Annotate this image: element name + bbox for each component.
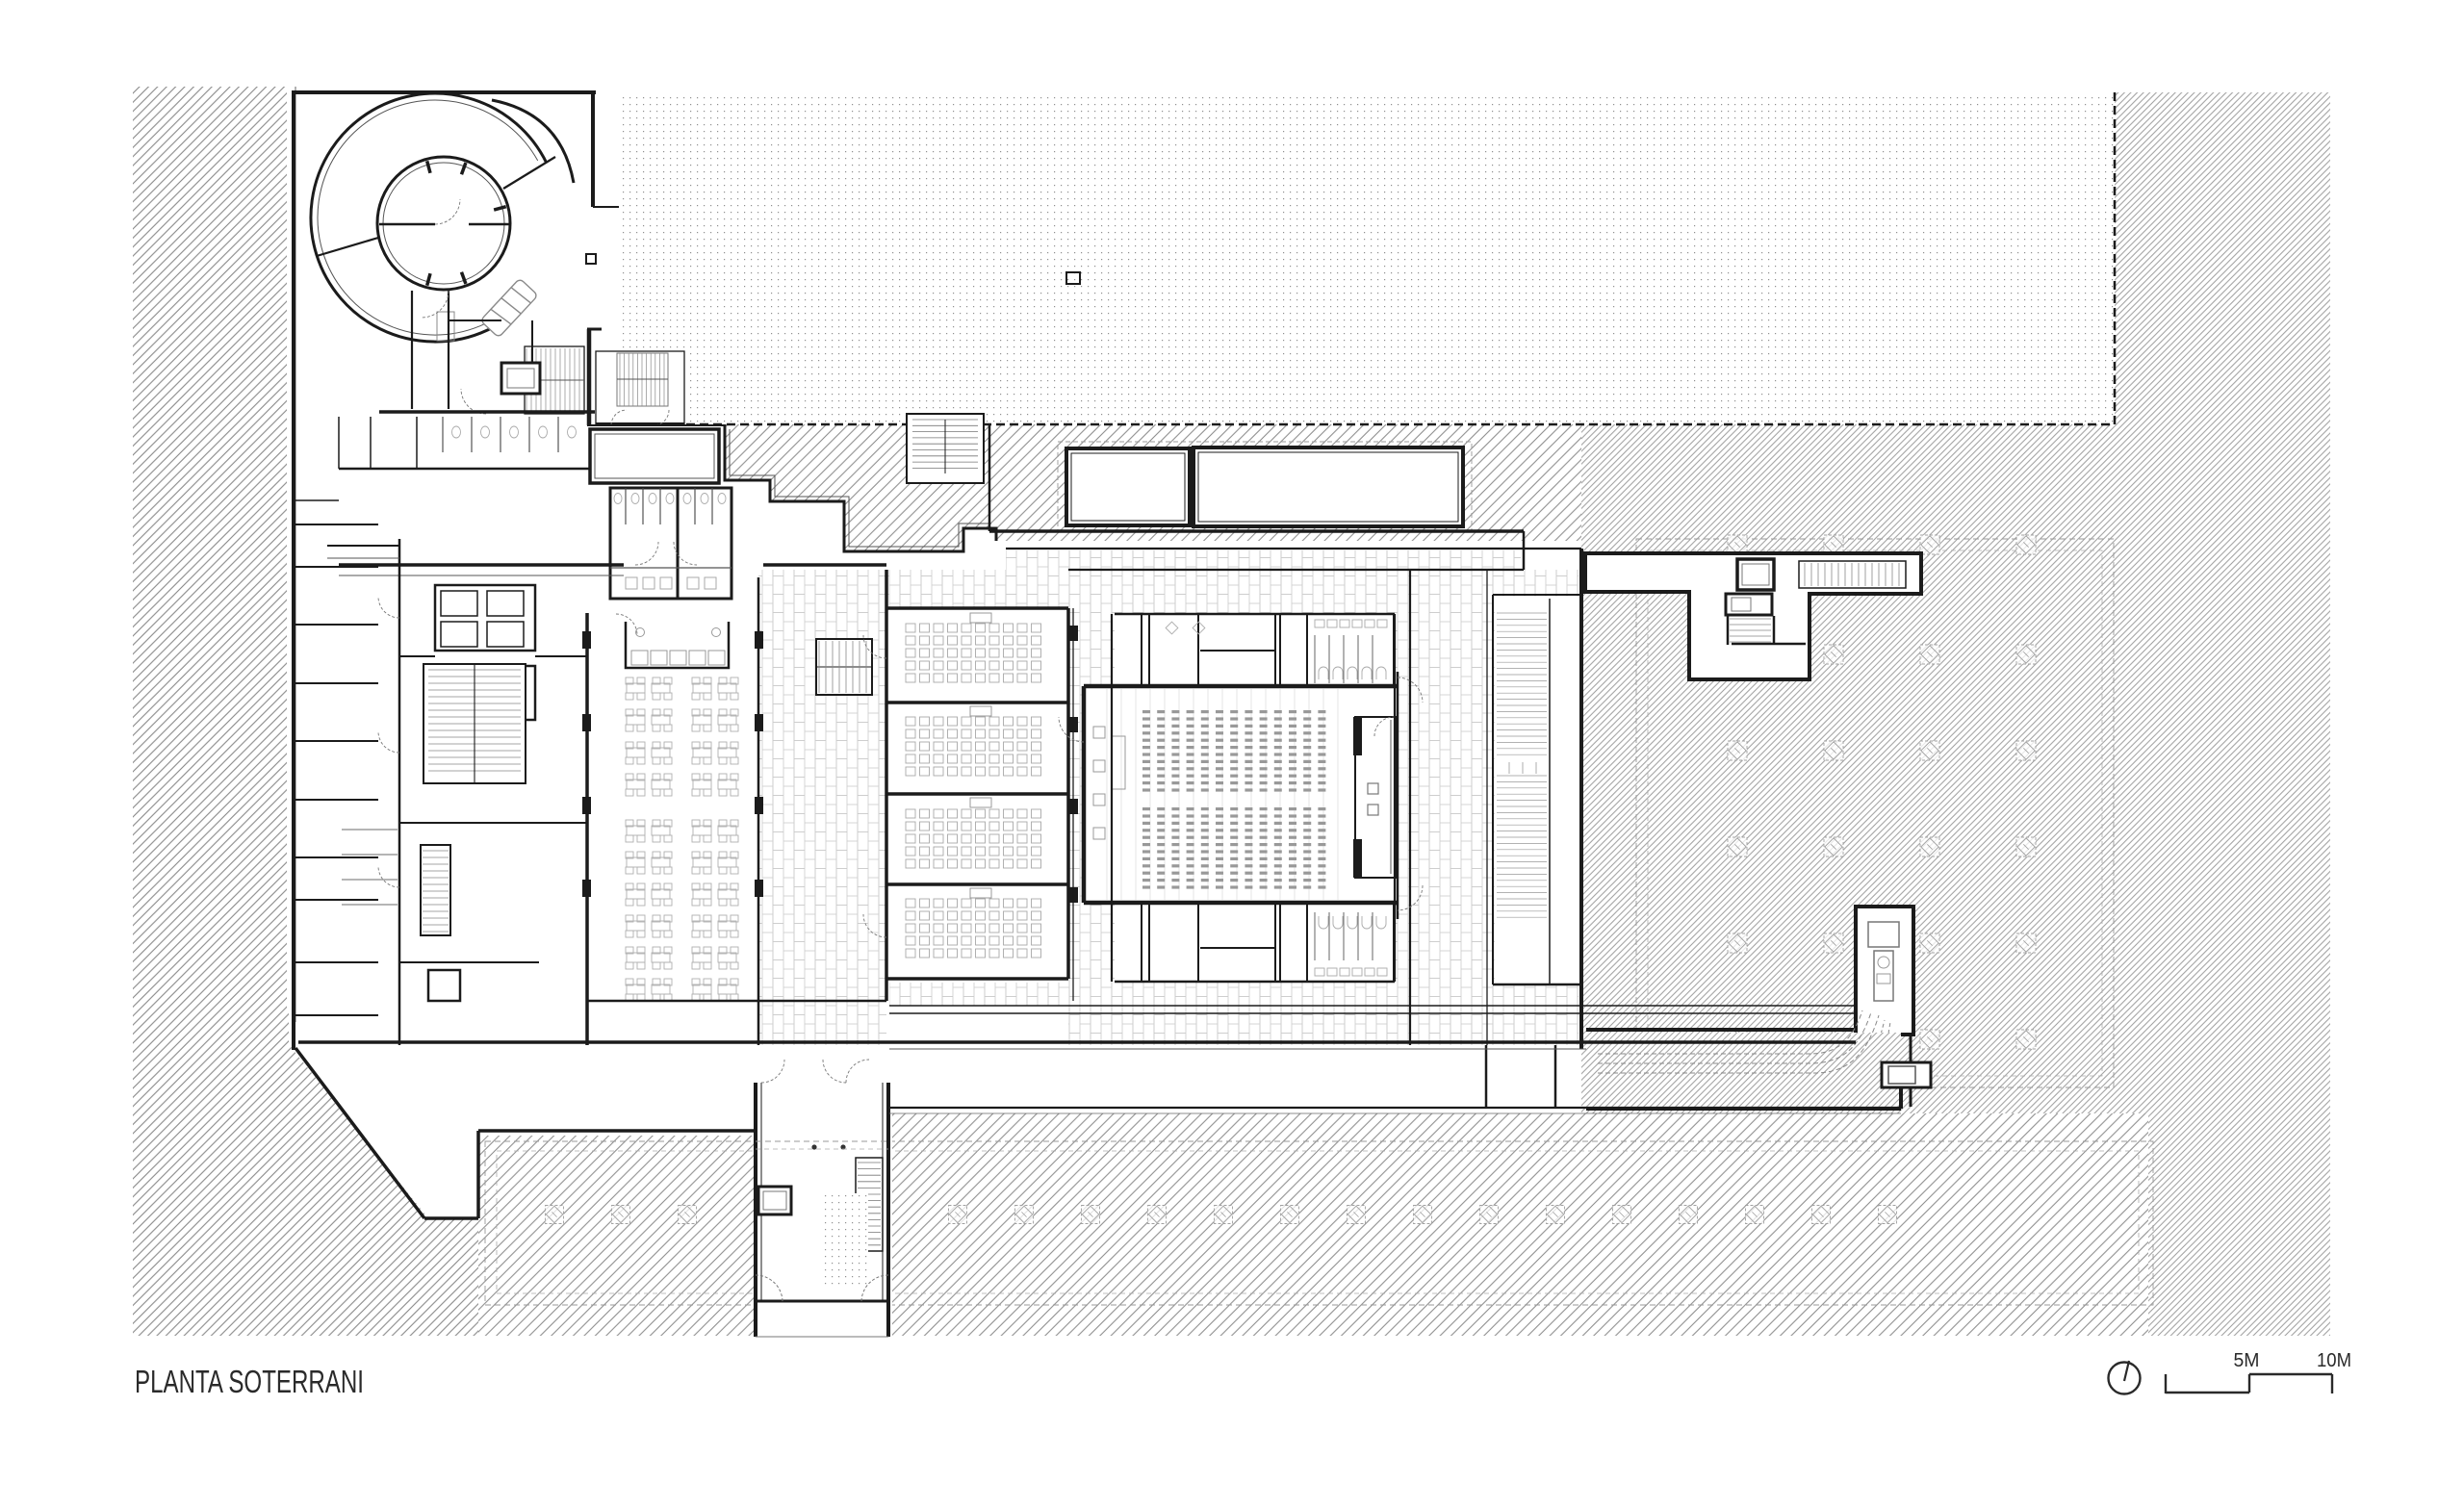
svg-text:PLANTA SOTERRANI: PLANTA SOTERRANI bbox=[135, 1364, 364, 1399]
svg-text:5M: 5M bbox=[2234, 1350, 2260, 1371]
svg-text:10M: 10M bbox=[2317, 1350, 2351, 1371]
